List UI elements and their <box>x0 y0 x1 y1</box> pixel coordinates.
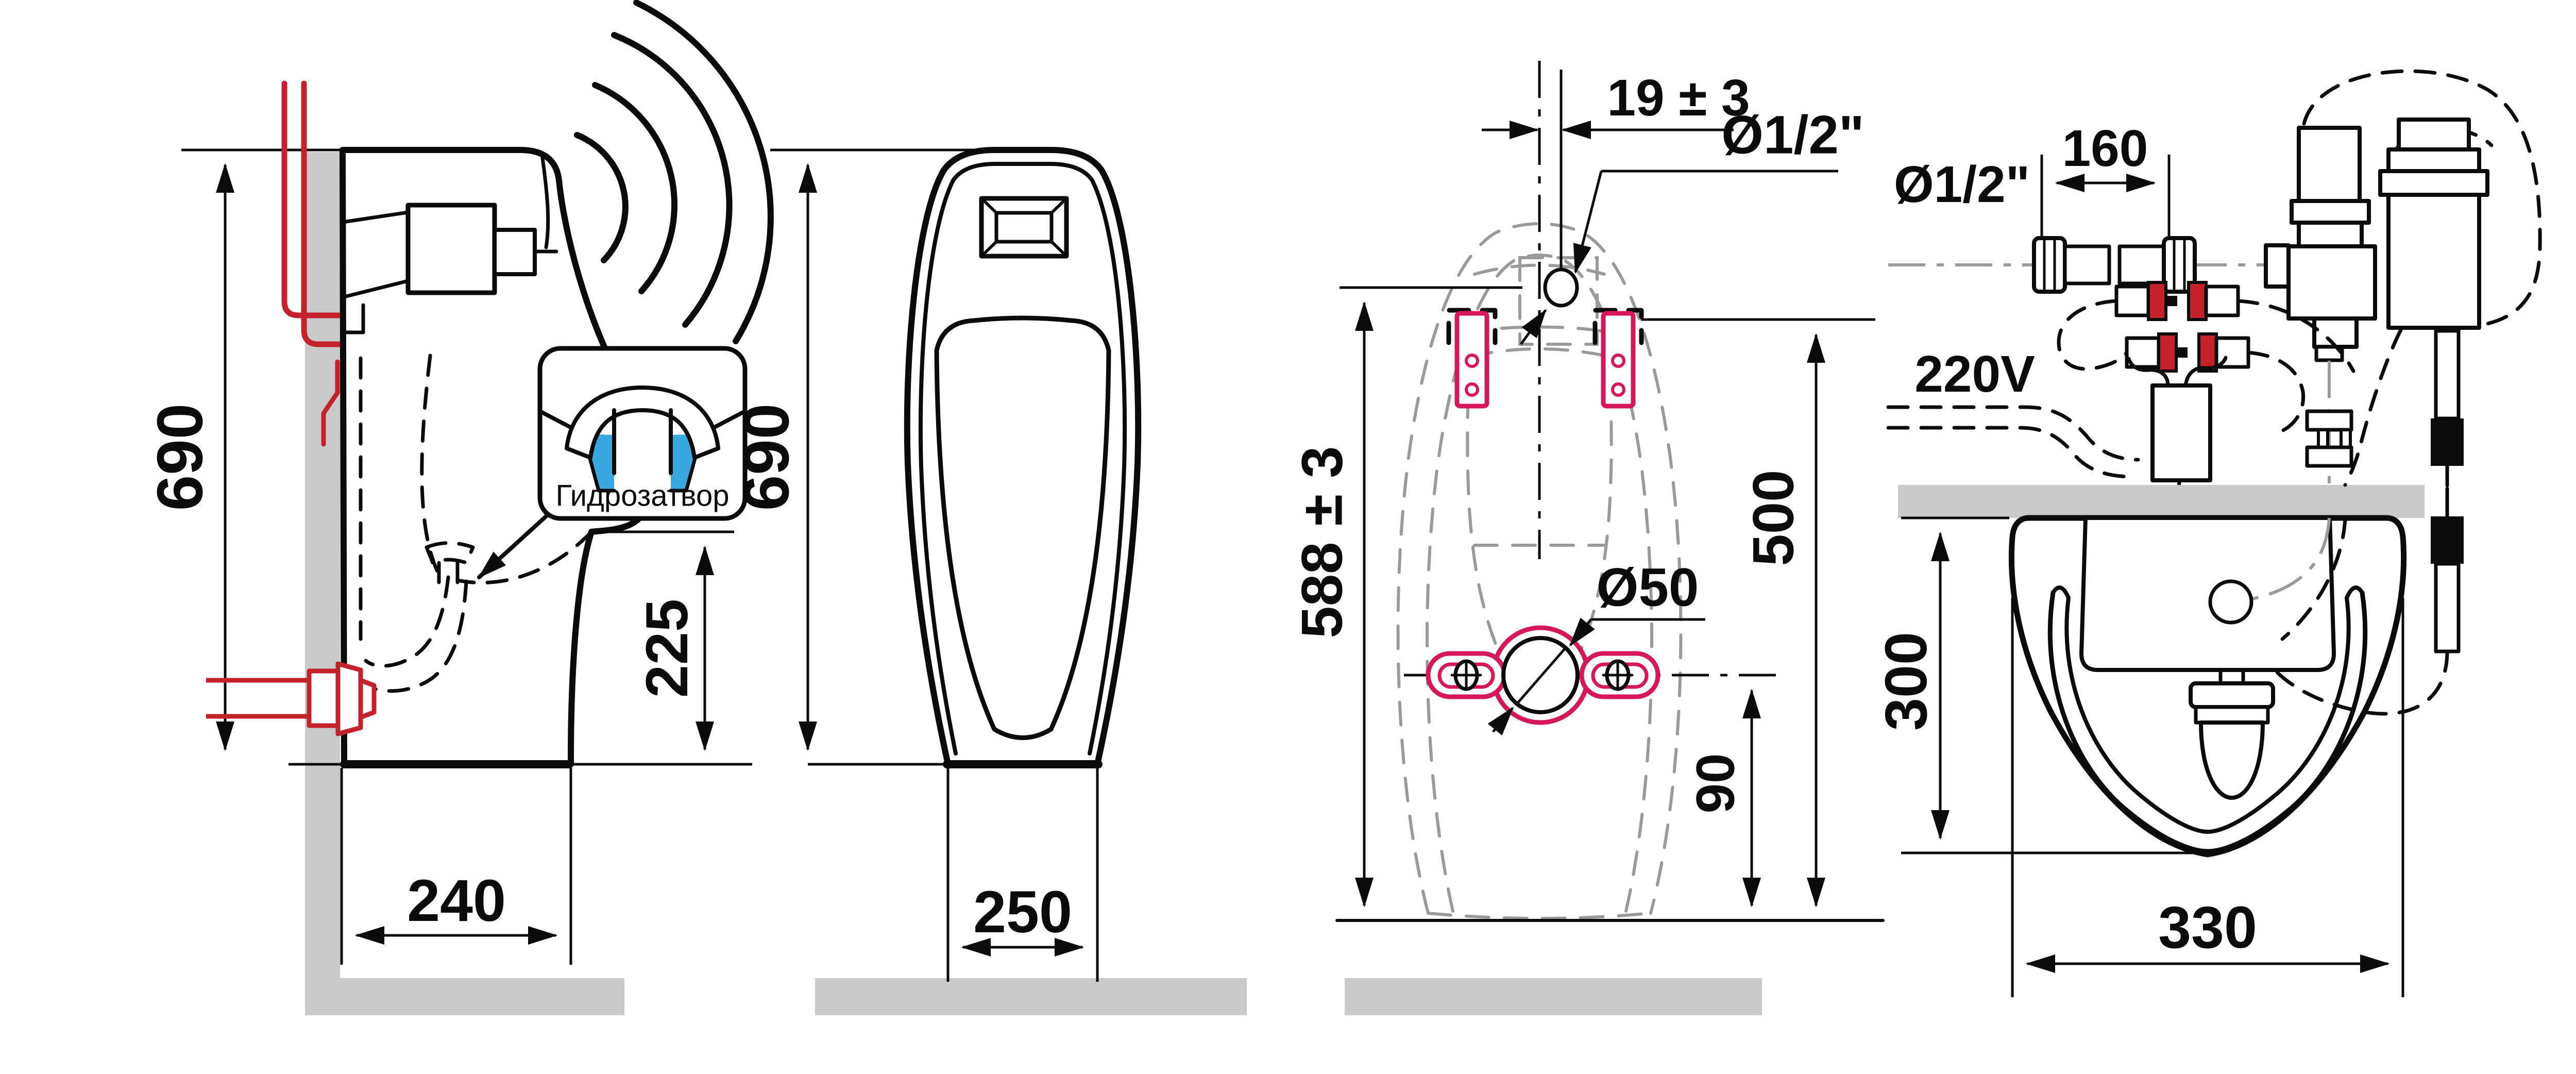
rear-view-panel: 19 ± 3 Ø1/2" 588 ± 3 <box>1290 61 1884 1015</box>
inlet-size-label: Ø1/2" <box>1721 105 1864 165</box>
width-dimension-250: 250 <box>948 768 1097 982</box>
dimension-label: 330 <box>2158 895 2257 961</box>
offset-dimension-19: 19 ± 3 <box>1482 69 1750 130</box>
installation-panel: Ø1/2" 160 <box>1873 71 2540 997</box>
dimension-label: 250 <box>973 879 1072 945</box>
inlet-hole <box>2210 581 2251 623</box>
depth-dimension-240: 240 <box>342 768 571 965</box>
dimension-label: 225 <box>634 599 700 698</box>
floor <box>815 978 1247 1015</box>
wall <box>1898 485 2425 518</box>
valve-body <box>2289 246 2375 318</box>
dimension-label: 690 <box>731 404 803 511</box>
dimension-label: 160 <box>2062 120 2148 177</box>
flex-hose <box>2034 238 2195 292</box>
dimension-label: 300 <box>1873 632 1939 731</box>
drain-outlet <box>206 664 374 734</box>
hose-size-label: Ø1/2" <box>1894 156 2030 213</box>
callout-label: Гидрозатвор <box>555 479 729 513</box>
front-view-panel: 690 250 <box>731 150 1247 1015</box>
dimension-label: 588 ± 3 <box>1290 446 1354 639</box>
canister-cap <box>2399 120 2469 149</box>
floor <box>1345 978 1762 1015</box>
urinal-front-outline <box>907 150 1138 764</box>
sensor-waves-icon <box>577 3 771 341</box>
sensor-window-icon <box>981 198 1066 256</box>
voltage-label: 220V <box>1914 345 2035 403</box>
spout-height-dimension-225: 225 <box>595 532 734 749</box>
valve-inlet <box>2266 245 2289 287</box>
drain-height-dimension-90: 90 <box>1686 691 1752 905</box>
solenoid-valve-unit <box>2266 71 2540 360</box>
dimension-label: 240 <box>407 868 506 934</box>
inlet-hole-callout: Ø1/2" <box>1521 105 1865 345</box>
transformer <box>2153 385 2210 480</box>
top-shelf <box>2081 518 2334 670</box>
connector-pair-2 <box>2127 334 2248 371</box>
drain-flange: Ø50 <box>1404 558 1777 732</box>
technical-drawing-page: 690 <box>0 0 2576 1074</box>
urinal-installation-drawing: 690 <box>0 0 2576 1074</box>
sensor-probes <box>2431 331 2464 651</box>
mounting-brackets <box>1449 310 1641 406</box>
solenoid-coil <box>2299 128 2360 201</box>
side-view-panel: 690 <box>145 3 771 1015</box>
drain-size-label: Ø50 <box>1597 558 1699 618</box>
dimension-label: 90 <box>1686 753 1746 814</box>
pipe-coupling <box>2307 361 2351 485</box>
dimension-label: 690 <box>145 404 216 511</box>
water-seal-callout: Гидрозатвор <box>479 348 745 577</box>
flush-mechanism <box>408 205 495 293</box>
urinal-top-view <box>2011 330 2447 854</box>
dimension-label: 500 <box>1741 470 1806 566</box>
